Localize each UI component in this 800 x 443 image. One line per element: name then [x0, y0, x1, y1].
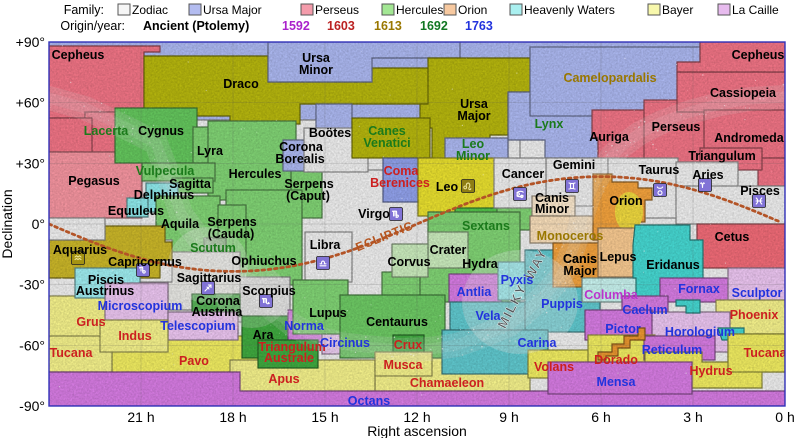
svg-text:Columba: Columba — [584, 288, 639, 302]
svg-text:Austrinus: Austrinus — [76, 284, 134, 298]
svg-text:Indus: Indus — [118, 329, 151, 343]
svg-text:Hercules: Hercules — [396, 3, 443, 17]
svg-text:Circinus: Circinus — [320, 336, 370, 350]
svg-text:Fornax: Fornax — [678, 282, 720, 296]
svg-text:Minor: Minor — [535, 202, 569, 216]
svg-text:-30°: -30° — [19, 277, 45, 293]
svg-text:1692: 1692 — [420, 19, 448, 33]
svg-text:Aquila: Aquila — [161, 217, 200, 231]
svg-text:Heavenly Waters: Heavenly Waters — [524, 3, 615, 17]
svg-text:Australe: Australe — [264, 351, 314, 365]
svg-text:1613: 1613 — [374, 19, 402, 33]
svg-text:Venatici: Venatici — [363, 136, 410, 150]
svg-text:Declination: Declination — [0, 189, 15, 258]
svg-text:Perseus: Perseus — [652, 120, 701, 134]
svg-text:Antlia: Antlia — [457, 285, 493, 299]
svg-text:Scorpius: Scorpius — [242, 284, 296, 298]
svg-text:-60°: -60° — [19, 337, 45, 353]
svg-text:Reticulum: Reticulum — [642, 343, 702, 357]
svg-text:1763: 1763 — [465, 19, 493, 33]
svg-text:Cassiopeia: Cassiopeia — [710, 86, 777, 100]
svg-text:Cygnus: Cygnus — [138, 124, 184, 138]
svg-text:Taurus: Taurus — [639, 163, 680, 177]
svg-text:Caelum: Caelum — [622, 303, 667, 317]
svg-text:Austrina: Austrina — [192, 305, 244, 319]
svg-text:Perseus: Perseus — [315, 3, 359, 17]
svg-text:Bayer: Bayer — [662, 3, 693, 17]
svg-text:Telescopium: Telescopium — [160, 319, 235, 333]
svg-text:Volans: Volans — [534, 360, 574, 374]
svg-text:Puppis: Puppis — [541, 297, 583, 311]
svg-text:Lynx: Lynx — [535, 117, 564, 131]
svg-text:Pictor: Pictor — [605, 322, 641, 336]
svg-text:Berenices: Berenices — [370, 176, 430, 190]
svg-text:3 h: 3 h — [683, 409, 702, 425]
svg-text:Auriga: Auriga — [589, 130, 630, 144]
svg-text:Hydrus: Hydrus — [689, 364, 732, 378]
svg-text:Sculptor: Sculptor — [732, 286, 783, 300]
svg-text:Major: Major — [457, 109, 490, 123]
svg-text:Major: Major — [563, 264, 596, 278]
svg-text:Equuleus: Equuleus — [108, 204, 164, 218]
svg-text:Monoceros: Monoceros — [537, 229, 604, 243]
svg-text:0°: 0° — [32, 216, 45, 232]
svg-text:1603: 1603 — [327, 19, 355, 33]
svg-text:Aquarius: Aquarius — [53, 243, 107, 257]
svg-text:Grus: Grus — [76, 315, 105, 329]
svg-text:Lyra: Lyra — [197, 144, 224, 158]
svg-text:Hydra: Hydra — [462, 257, 498, 271]
svg-text:Triangulum: Triangulum — [688, 149, 755, 163]
svg-text:Zodiac: Zodiac — [132, 3, 168, 17]
svg-text:Vulpecula: Vulpecula — [136, 164, 196, 178]
svg-text:Lupus: Lupus — [309, 306, 347, 320]
svg-text:Pegasus: Pegasus — [68, 174, 119, 188]
svg-text:Right ascension: Right ascension — [367, 423, 467, 438]
svg-text:Tucana: Tucana — [50, 346, 94, 360]
svg-text:Aries: Aries — [692, 168, 723, 182]
svg-text:0 h: 0 h — [775, 409, 794, 425]
svg-text:Capricornus: Capricornus — [108, 255, 182, 269]
svg-text:21 h: 21 h — [127, 409, 154, 425]
svg-text:Ophiuchus: Ophiuchus — [231, 254, 296, 268]
svg-text:Carina: Carina — [518, 336, 558, 350]
svg-text:Hercules: Hercules — [229, 167, 282, 181]
svg-text:18 h: 18 h — [219, 409, 246, 425]
svg-text:Orion: Orion — [609, 194, 642, 208]
svg-text:Delphinus: Delphinus — [134, 188, 194, 202]
svg-text:Microscopium: Microscopium — [98, 299, 183, 313]
svg-text:Minor: Minor — [456, 149, 490, 163]
svg-text:Cepheus: Cepheus — [52, 48, 105, 62]
svg-text:Tucana: Tucana — [744, 346, 788, 360]
svg-text:Lacerta: Lacerta — [84, 124, 130, 138]
svg-text:Sagittarius: Sagittarius — [177, 271, 242, 285]
svg-text:Family:: Family: — [64, 3, 104, 17]
svg-text:Vela: Vela — [475, 309, 501, 323]
svg-text:Cetus: Cetus — [715, 230, 750, 244]
svg-text:Pisces: Pisces — [740, 184, 780, 198]
svg-text:Sextans: Sextans — [462, 219, 510, 233]
svg-text:Gemini: Gemini — [553, 158, 595, 172]
svg-text:Libra: Libra — [310, 238, 342, 252]
svg-text:Eridanus: Eridanus — [646, 258, 700, 272]
svg-text:Corvus: Corvus — [387, 255, 430, 269]
svg-text:Canis: Canis — [563, 252, 597, 266]
svg-text:Dorado: Dorado — [594, 353, 638, 367]
svg-text:Cancer: Cancer — [502, 167, 545, 181]
svg-text:Borealis: Borealis — [275, 152, 324, 166]
svg-text:Lepus: Lepus — [600, 250, 637, 264]
svg-text:Camelopardalis: Camelopardalis — [563, 71, 656, 85]
svg-text:Horologium: Horologium — [665, 325, 735, 339]
svg-text:Centaurus: Centaurus — [366, 315, 428, 329]
svg-text:Leo: Leo — [436, 180, 459, 194]
svg-text:+60°: +60° — [16, 95, 45, 111]
svg-text:Virgo: Virgo — [358, 207, 390, 221]
svg-text:(Caput): (Caput) — [286, 189, 330, 203]
svg-text:Norma: Norma — [284, 319, 325, 333]
svg-text:Boötes: Boötes — [309, 126, 351, 140]
svg-text:(Cauda): (Cauda) — [208, 227, 255, 241]
svg-text:Chamaeleon: Chamaeleon — [410, 376, 484, 390]
svg-text:-90°: -90° — [19, 398, 45, 414]
svg-text:Phoenix: Phoenix — [730, 308, 779, 322]
svg-text:1592: 1592 — [282, 19, 310, 33]
svg-text:Crater: Crater — [430, 243, 467, 257]
svg-text:Orion: Orion — [458, 3, 487, 17]
svg-text:Apus: Apus — [268, 372, 299, 386]
svg-text:Crux: Crux — [394, 338, 423, 352]
svg-text:Mensa: Mensa — [597, 375, 637, 389]
svg-text:La Caille: La Caille — [732, 3, 779, 17]
svg-text:Ursa Major: Ursa Major — [203, 3, 262, 17]
svg-text:6 h: 6 h — [591, 409, 610, 425]
svg-text:Andromeda: Andromeda — [714, 131, 785, 145]
svg-text:Cepheus: Cepheus — [732, 48, 785, 62]
svg-text:Pyxis: Pyxis — [501, 273, 534, 287]
svg-text:+90°: +90° — [16, 34, 45, 50]
svg-text:Draco: Draco — [223, 77, 259, 91]
svg-text:+30°: +30° — [16, 155, 45, 171]
svg-text:Musca: Musca — [384, 358, 424, 372]
svg-text:Pavo: Pavo — [179, 354, 209, 368]
svg-text:Scutum: Scutum — [190, 241, 236, 255]
svg-text:9 h: 9 h — [499, 409, 518, 425]
svg-text:Origin/year:: Origin/year: — [60, 19, 125, 33]
svg-text:Ancient (Ptolemy): Ancient (Ptolemy) — [143, 19, 249, 33]
svg-text:15 h: 15 h — [311, 409, 338, 425]
svg-text:Minor: Minor — [299, 63, 333, 77]
